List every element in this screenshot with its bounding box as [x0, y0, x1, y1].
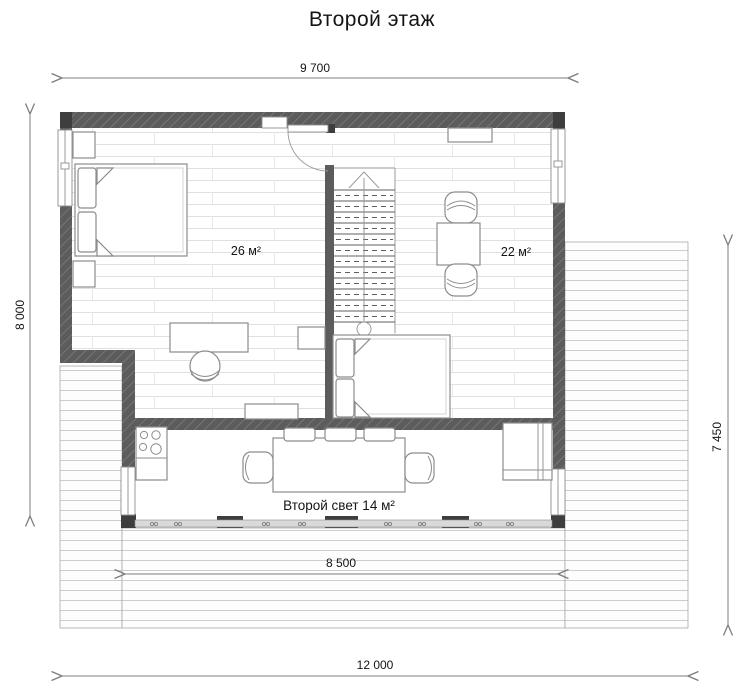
wall-niche [262, 117, 287, 128]
room-label-bedroom: 26 м² [231, 244, 261, 258]
pillow [336, 379, 354, 417]
pillow [78, 168, 96, 208]
dining-chair-left [243, 452, 273, 483]
window-left-bottom [121, 467, 135, 515]
floor-plan-page: 9 700 8 000 7 450 8 500 12 000 Второй эт… [0, 0, 744, 700]
dimension-right-value: 7 450 [710, 422, 724, 452]
window-left [58, 130, 72, 206]
nightstand [73, 132, 95, 158]
window-right-bottom [551, 469, 565, 515]
table-small [437, 223, 480, 265]
kitchen-stove [136, 427, 167, 480]
staircase [334, 168, 395, 336]
corner-post [60, 112, 72, 128]
corner-post [121, 514, 136, 528]
dining-table [273, 438, 405, 492]
floor-plan-drawing: 9 700 8 000 7 450 8 500 12 000 Второй эт… [0, 0, 744, 700]
dimension-terrace-value: 8 500 [326, 556, 356, 570]
dresser [245, 404, 298, 419]
desk [170, 323, 248, 352]
bed-double [75, 164, 187, 256]
dimension-left-value: 8 000 [13, 300, 27, 330]
window-right-top [551, 129, 565, 203]
cabinet-small [298, 327, 325, 349]
door-leaf [288, 125, 328, 132]
room-label-hall: 22 м² [501, 245, 531, 259]
corner-post [551, 514, 565, 528]
dining-chair-right [405, 453, 434, 483]
desk-chair [190, 351, 220, 381]
rail-wall [135, 520, 552, 527]
stair-newel [357, 322, 371, 336]
armchair-bottom [445, 264, 477, 296]
room-label-void: Второй свет 14 м² [283, 498, 395, 513]
pillow [336, 339, 354, 377]
cabinet-right [503, 423, 552, 480]
corner-post [553, 112, 565, 128]
dimension-top-value: 9 700 [300, 61, 330, 75]
page-title: Второй этаж [309, 8, 435, 31]
wardrobe [448, 128, 492, 142]
nightstand [73, 261, 95, 287]
armchair-top [445, 192, 477, 223]
nook-bed [333, 335, 450, 418]
dining-chairs-top [284, 428, 395, 441]
dimension-bottom-value: 12 000 [357, 658, 394, 672]
pillow [78, 212, 96, 252]
